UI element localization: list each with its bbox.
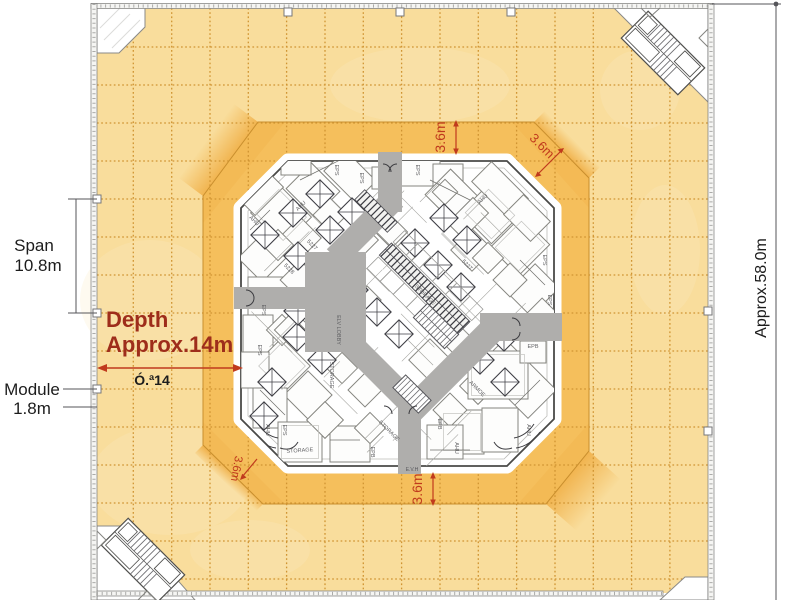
svg-text:EPB: EPB [436,418,442,429]
svg-text:EPS: EPS [414,164,420,175]
svg-text:10.8m: 10.8m [14,256,61,275]
svg-text:AHU: AHU [525,424,531,436]
svg-text:E.V.H: E.V.H [406,467,419,473]
svg-text:EPS: EPS [541,254,547,265]
svg-text:EPS: EPS [546,294,552,305]
svg-text:1.8m: 1.8m [13,399,51,418]
svg-text:EPB: EPB [527,344,538,350]
svg-text:EPS: EPS [260,304,266,315]
svg-text:EPS: EPS [358,172,364,183]
svg-text:Approx.14m: Approx.14m [106,332,233,357]
svg-text:Module: Module [4,380,60,399]
svg-text:EPS: EPS [333,164,339,175]
svg-text:Span: Span [14,236,54,255]
svg-text:Depth: Depth [106,307,168,332]
svg-text:AHU: AHU [453,442,459,454]
svg-text:ELV LOBBY: ELV LOBBY [335,315,341,345]
svg-text:EPS: EPS [281,424,287,435]
svg-text:3.6m: 3.6m [409,473,425,504]
svg-text:Approx.58.0m: Approx.58.0m [753,238,770,338]
svg-text:EPB: EPB [369,446,375,457]
svg-text:Ó.ª14: Ó.ª14 [134,371,170,388]
svg-text:EPS: EPS [256,344,262,355]
svg-text:STORAGE: STORAGE [328,362,334,389]
svg-text:3.6m: 3.6m [432,121,448,152]
